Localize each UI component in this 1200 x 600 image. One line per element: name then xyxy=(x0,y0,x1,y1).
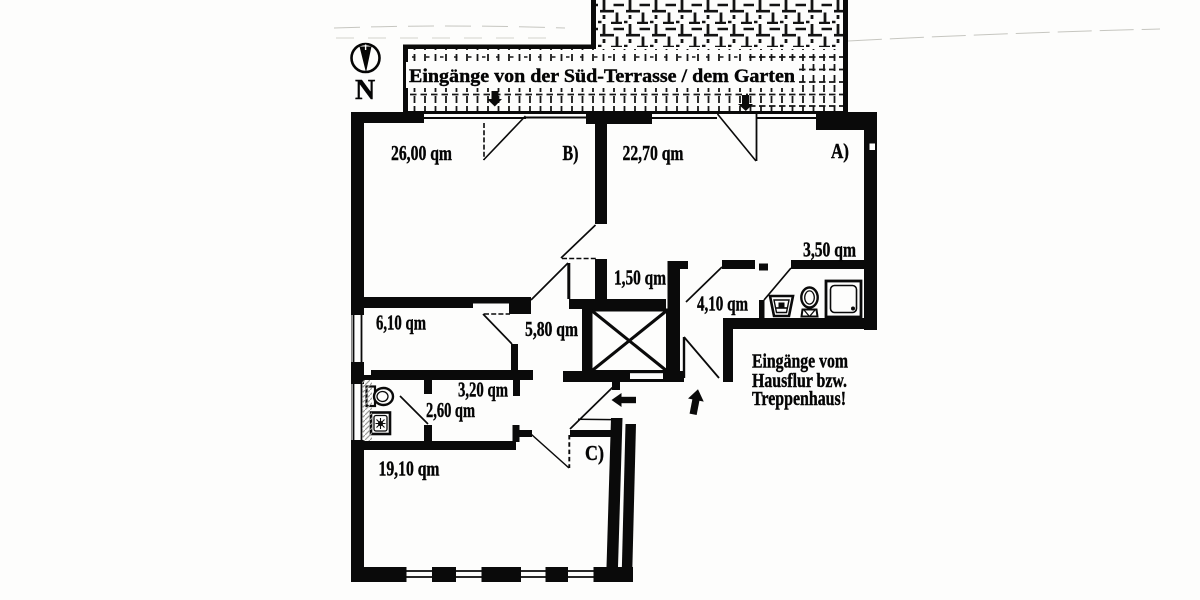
svg-text:B): B) xyxy=(563,141,579,165)
svg-text:Eingänge von der Süd-Terrasse: Eingänge von der Süd-Terrasse / dem Gart… xyxy=(409,66,795,87)
svg-text:6,10 qm: 6,10 qm xyxy=(376,311,426,335)
svg-text:Eingänge vom: Eingänge vom xyxy=(752,352,848,373)
svg-text:26,00 qm: 26,00 qm xyxy=(391,141,452,165)
svg-text:19,10 qm: 19,10 qm xyxy=(379,457,440,481)
svg-text:1,50 qm: 1,50 qm xyxy=(614,266,666,290)
svg-text:4,10 qm: 4,10 qm xyxy=(697,292,748,316)
svg-text:Treppenhaus!: Treppenhaus! xyxy=(752,389,846,410)
svg-text:3,50 qm: 3,50 qm xyxy=(803,238,856,262)
svg-text:22,70 qm: 22,70 qm xyxy=(623,141,684,165)
svg-text:N: N xyxy=(355,75,375,106)
svg-text:C): C) xyxy=(585,441,604,465)
svg-text:2,60 qm: 2,60 qm xyxy=(426,398,475,422)
svg-text:A): A) xyxy=(831,139,849,163)
svg-text:5,80 qm: 5,80 qm xyxy=(525,317,578,341)
